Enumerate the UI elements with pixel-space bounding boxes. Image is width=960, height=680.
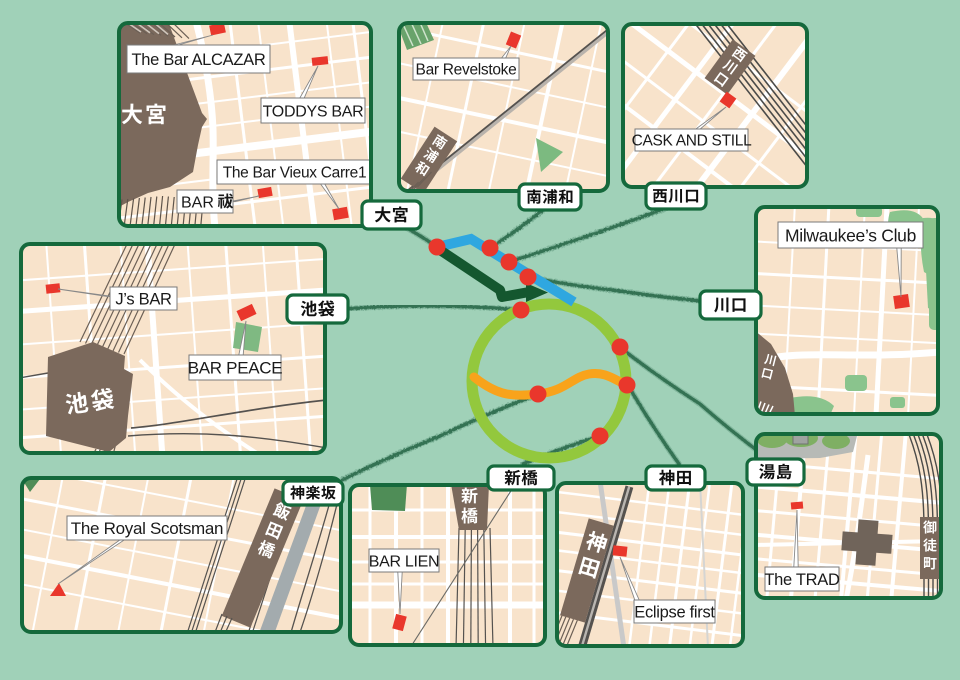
svg-text:BAR: BAR	[181, 195, 214, 212]
svg-text:Bar Revelstoke: Bar Revelstoke	[416, 62, 517, 79]
svg-text:Eclipse first: Eclipse first	[634, 603, 715, 621]
svg-text:CASK AND STILL: CASK AND STILL	[632, 133, 753, 150]
svg-text:The TRAD: The TRAD	[764, 571, 840, 589]
svg-text:BAR PEACE: BAR PEACE	[188, 359, 283, 378]
svg-text:The Bar Vieux Carre1: The Bar Vieux Carre1	[223, 165, 367, 182]
svg-text:The Bar ALCAZAR: The Bar ALCAZAR	[132, 51, 266, 69]
svg-text:TODDYS BAR: TODDYS BAR	[263, 103, 364, 120]
svg-text:J’s BAR: J’s BAR	[115, 290, 172, 308]
svg-text:The Royal Scotsman: The Royal Scotsman	[71, 519, 223, 538]
svg-text:Milwaukee’s Club: Milwaukee’s Club	[785, 225, 916, 245]
svg-text:BAR LIEN: BAR LIEN	[369, 553, 440, 570]
